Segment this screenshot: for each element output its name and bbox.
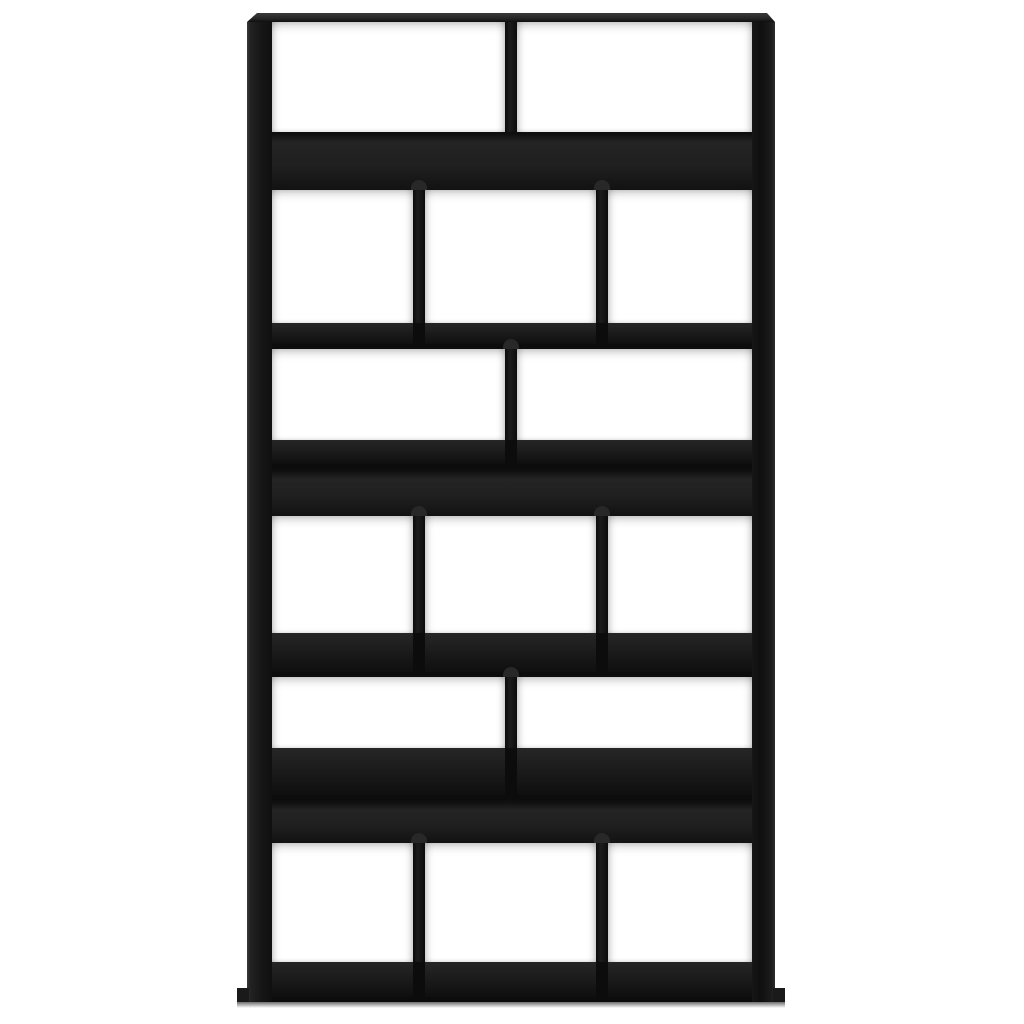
divider [505,22,517,132]
right-wall [752,22,775,1002]
band-3 [247,800,775,843]
divider [505,349,517,440]
divider [413,190,425,323]
left-wall [247,22,272,1002]
band-2 [247,469,775,516]
divider-shadow [596,962,608,1002]
compartment-opening [608,516,752,633]
divider-top-dowel [594,180,610,190]
divider [596,516,608,633]
shelf-floor [272,633,413,672]
compartment-opening [425,190,596,323]
shelf-floor [272,962,413,997]
compartment-opening [272,349,505,440]
shelf-floor [608,633,752,672]
band-1 [247,132,775,190]
shelf-floor [272,323,413,344]
shelf-floor [608,323,752,344]
top-panel [247,13,775,22]
compartment-opening [517,677,752,748]
divider-top-dowel [503,667,519,677]
divider-top-dowel [411,506,427,516]
page: { "image": { "subject": "black engineere… [0,0,1024,1024]
product-photo [0,0,1024,1024]
bookcase [247,13,775,1002]
compartment-opening [608,843,752,962]
divider-top-dowel [411,833,427,843]
divider [505,677,517,748]
plinth-left-lip [237,988,249,1002]
divider [413,843,425,962]
divider-shadow [596,633,608,677]
divider-top-dowel [594,833,610,843]
shelf-floor [272,748,505,795]
plinth-right-lip [773,988,785,1002]
shelf-floor [517,440,752,464]
shelf-floor [425,962,596,997]
compartment-opening [272,190,413,323]
divider-top-dowel [503,339,519,349]
compartment-opening [425,516,596,633]
divider-top-dowel [411,180,427,190]
divider-shadow [413,962,425,1002]
divider-shadow [505,748,517,800]
ground-shadow [237,1002,785,1008]
divider-shadow [413,633,425,677]
divider [413,516,425,633]
compartment-opening [517,22,752,132]
divider [596,843,608,962]
compartment-opening [425,843,596,962]
shelf-floor [608,962,752,997]
compartment-opening [517,349,752,440]
compartment-opening [272,516,413,633]
compartment-opening [608,190,752,323]
compartment-opening [272,677,505,748]
compartment-opening [272,22,505,132]
divider-top-dowel [594,506,610,516]
shelf-floor [272,440,505,464]
compartment-opening [272,843,413,962]
divider [596,190,608,323]
shelf-floor [517,748,752,795]
